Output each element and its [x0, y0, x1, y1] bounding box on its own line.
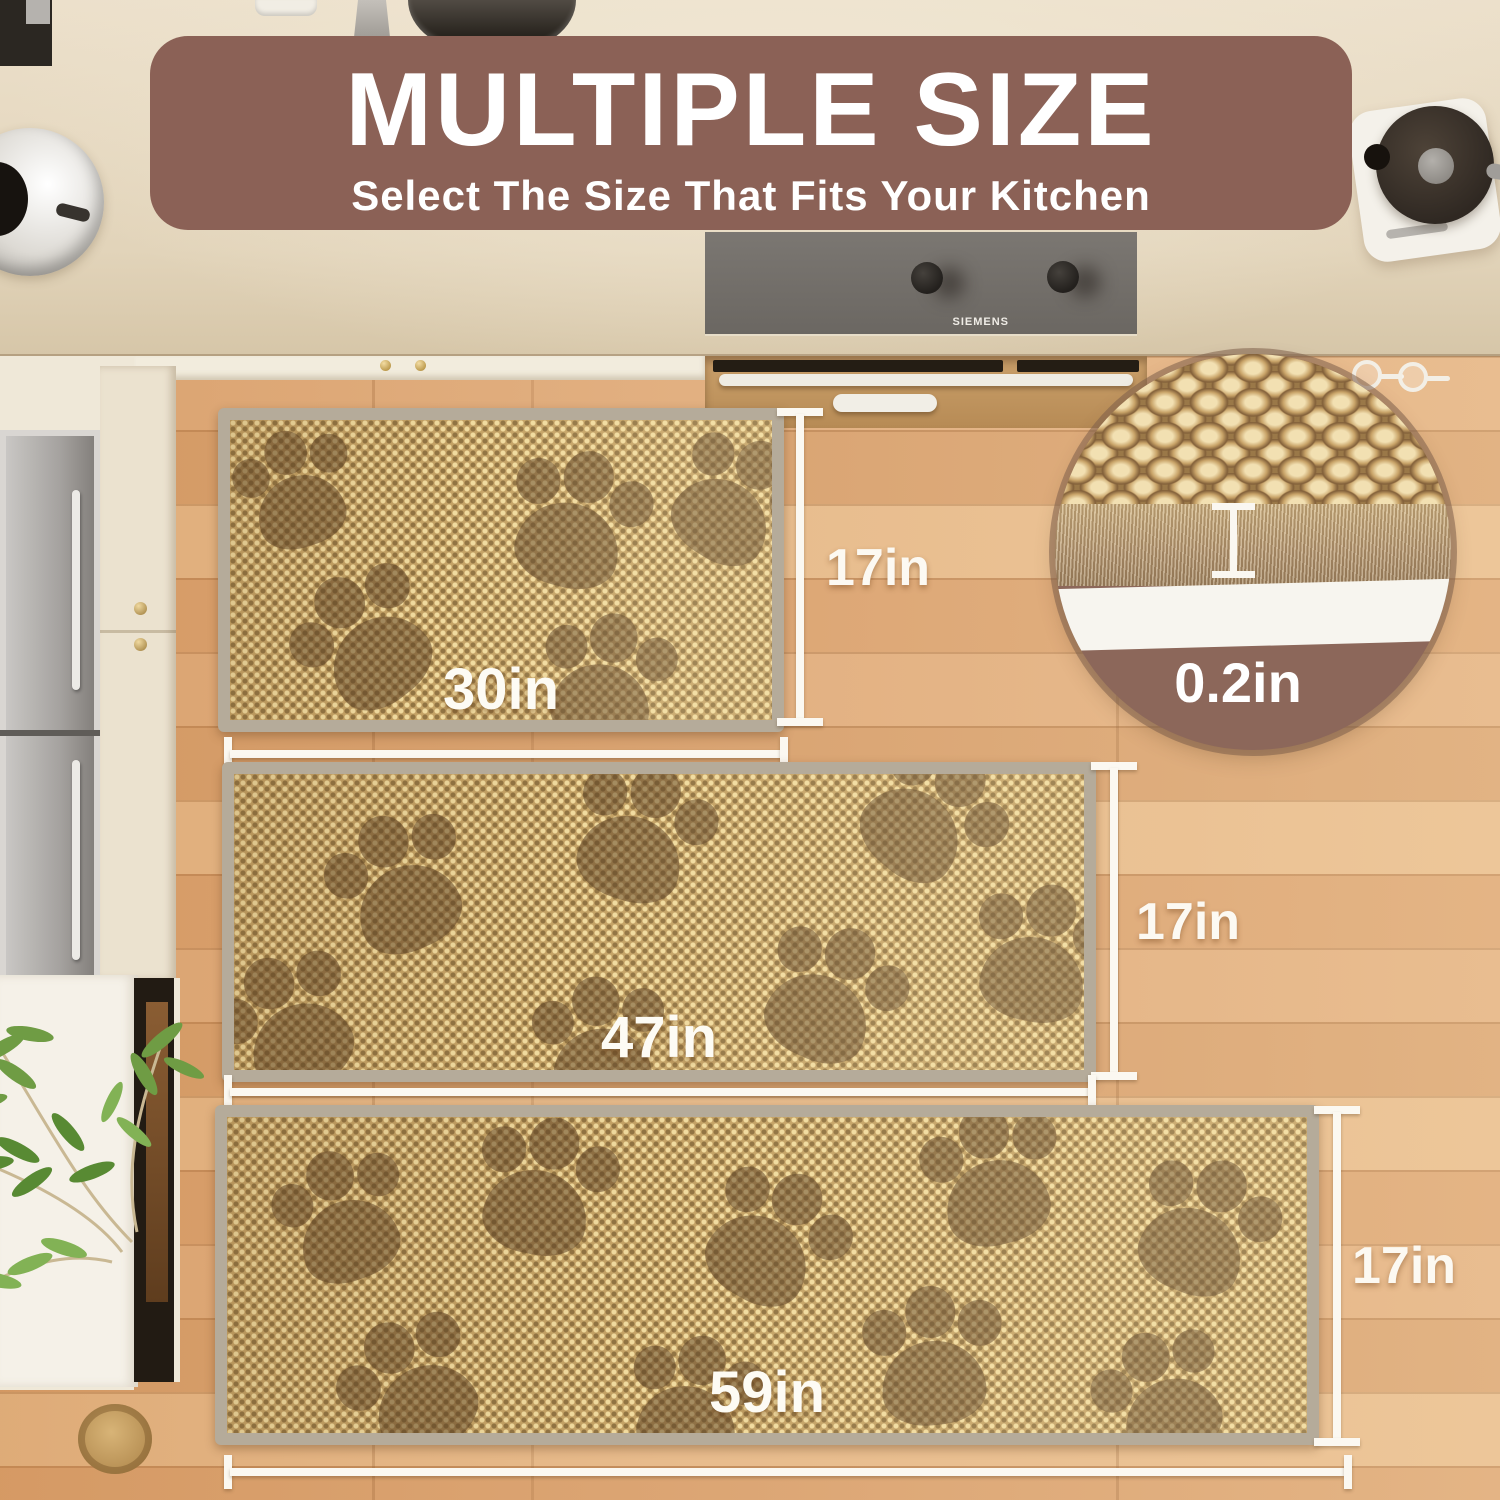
- stove-knob-left: [911, 262, 943, 294]
- wicker-basket: [78, 1404, 152, 1474]
- pot-handle: [55, 202, 91, 223]
- measure-cap: [1091, 1072, 1137, 1080]
- rug-large-59x17: 59in: [215, 1105, 1319, 1445]
- paw-print: [546, 762, 732, 924]
- tall-cabinet-door: [100, 366, 176, 980]
- banner-subtitle: Select The Size That Fits Your Kitchen: [150, 172, 1352, 220]
- paw-print: [218, 414, 374, 567]
- kettle: [1352, 96, 1500, 264]
- paw-print: [639, 408, 784, 594]
- cabinet-knob: [134, 638, 147, 651]
- kettle-spout: [1364, 144, 1390, 170]
- paw-print: [1106, 1134, 1298, 1320]
- cabinet-knob: [380, 360, 391, 371]
- measure-cap: [1314, 1438, 1360, 1446]
- kettle-lid-knob: [1418, 148, 1454, 184]
- dish: [255, 0, 317, 16]
- rug-large-width-label: 59in: [227, 1359, 1307, 1426]
- paw-print: [827, 762, 1032, 916]
- thickness-measure-line: [1230, 507, 1237, 573]
- cabinet-knob: [134, 602, 147, 615]
- rug-large-height-label: 17in: [1352, 1236, 1456, 1296]
- drawer-slot: [713, 360, 1003, 372]
- rug-small-30x17: 30in: [218, 408, 784, 732]
- measure-line: [1333, 1112, 1341, 1442]
- appliance-handle: [72, 490, 80, 690]
- rug-medium-47x17: 47in: [222, 762, 1096, 1082]
- rug-medium-width-label: 47in: [234, 1004, 1084, 1071]
- measure-cap: [1088, 1075, 1096, 1109]
- paw-print: [902, 1105, 1081, 1263]
- measure-cap: [1212, 571, 1255, 578]
- stove-knob-right: [1047, 261, 1079, 293]
- headline-banner: MULTIPLE SIZE Select The Size That Fits …: [150, 36, 1352, 230]
- cabinet-door-seam: [100, 630, 176, 633]
- left-cabinet-strip: [130, 356, 705, 380]
- thickness-inset-circle: 0.2in: [1055, 354, 1451, 750]
- rug-medium-height-label: 17in: [1136, 892, 1240, 952]
- cabinet-knob: [415, 360, 426, 371]
- rug-small-height-label: 17in: [826, 538, 930, 598]
- paw-print: [302, 790, 496, 979]
- measure-line: [796, 414, 804, 722]
- rug-weave-closeup: [1055, 354, 1451, 506]
- paw-print: [485, 434, 664, 606]
- measure-cap: [1344, 1455, 1352, 1489]
- paw-print: [252, 1130, 431, 1304]
- paw-print: [454, 1105, 630, 1271]
- potted-plant: [0, 982, 222, 1312]
- drawer-handle: [833, 394, 937, 412]
- kitchen-rug-size-infographic: SIEMENS: [0, 0, 1500, 1500]
- stainless-appliance: [0, 430, 100, 990]
- stove-brand-label: SIEMENS: [952, 316, 1009, 328]
- measure-line: [230, 750, 782, 758]
- banner-title: MULTIPLE SIZE: [150, 36, 1352, 162]
- paw-print: [672, 1139, 872, 1335]
- appliance-handle: [72, 760, 80, 960]
- thickness-label: 0.2in: [1065, 650, 1411, 715]
- measure-cap: [777, 718, 823, 726]
- rug-small-width-label: 30in: [230, 656, 772, 723]
- cooktop: SIEMENS: [705, 232, 1137, 334]
- rug-backing-layer: [1055, 579, 1451, 652]
- appliance-divider: [0, 730, 100, 736]
- measure-line: [1110, 768, 1118, 1074]
- pot-opening: [0, 162, 28, 236]
- measure-line: [230, 1088, 1090, 1096]
- corner-box: [26, 0, 50, 24]
- measure-line: [230, 1468, 1344, 1476]
